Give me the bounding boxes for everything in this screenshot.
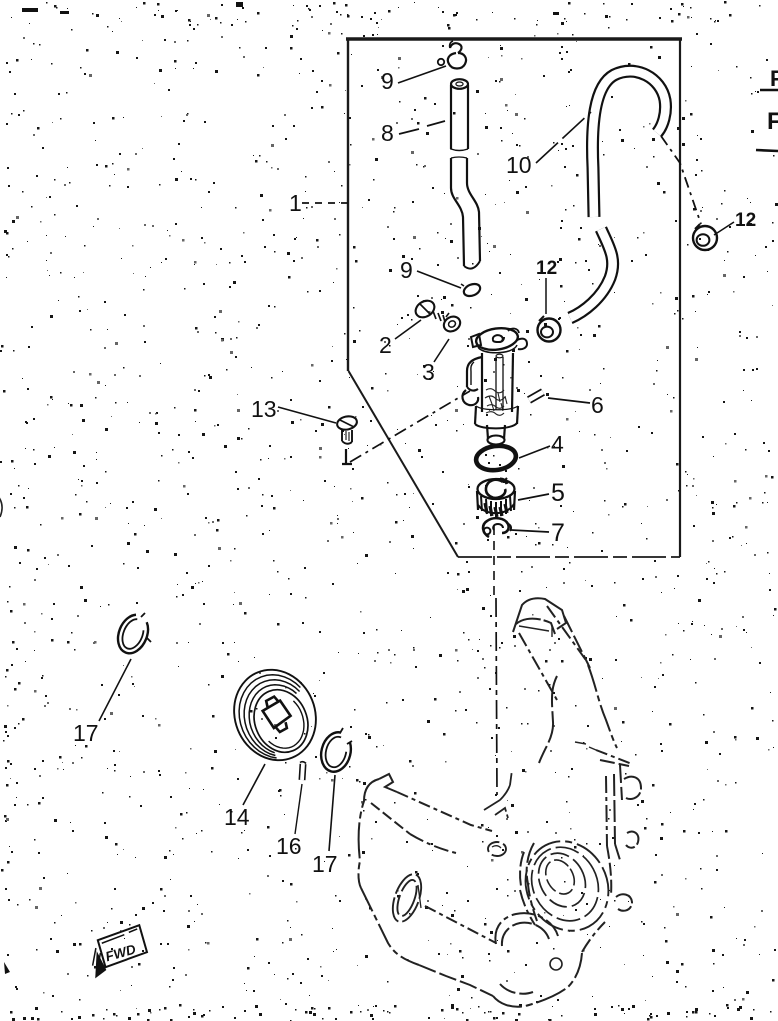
svg-text:12: 12 [536, 258, 557, 279]
svg-text:12: 12 [735, 210, 756, 231]
svg-text:10: 10 [506, 152, 532, 178]
svg-text:3: 3 [422, 359, 435, 385]
svg-text:9: 9 [381, 68, 394, 94]
svg-text:2: 2 [379, 332, 392, 358]
svg-text:F: F [770, 66, 778, 91]
svg-text:17: 17 [73, 720, 99, 746]
svg-text:4: 4 [551, 431, 564, 457]
svg-text:6: 6 [591, 392, 604, 418]
svg-text:14: 14 [224, 804, 250, 830]
svg-text:7: 7 [551, 519, 565, 547]
svg-text:1: 1 [289, 190, 302, 216]
svg-text:5: 5 [551, 479, 565, 507]
svg-text:17: 17 [312, 851, 338, 877]
svg-text:16: 16 [276, 833, 302, 859]
svg-text:9: 9 [400, 257, 413, 283]
svg-text:8: 8 [381, 120, 394, 146]
svg-text:F: F [767, 108, 778, 135]
svg-text:13: 13 [251, 396, 277, 422]
